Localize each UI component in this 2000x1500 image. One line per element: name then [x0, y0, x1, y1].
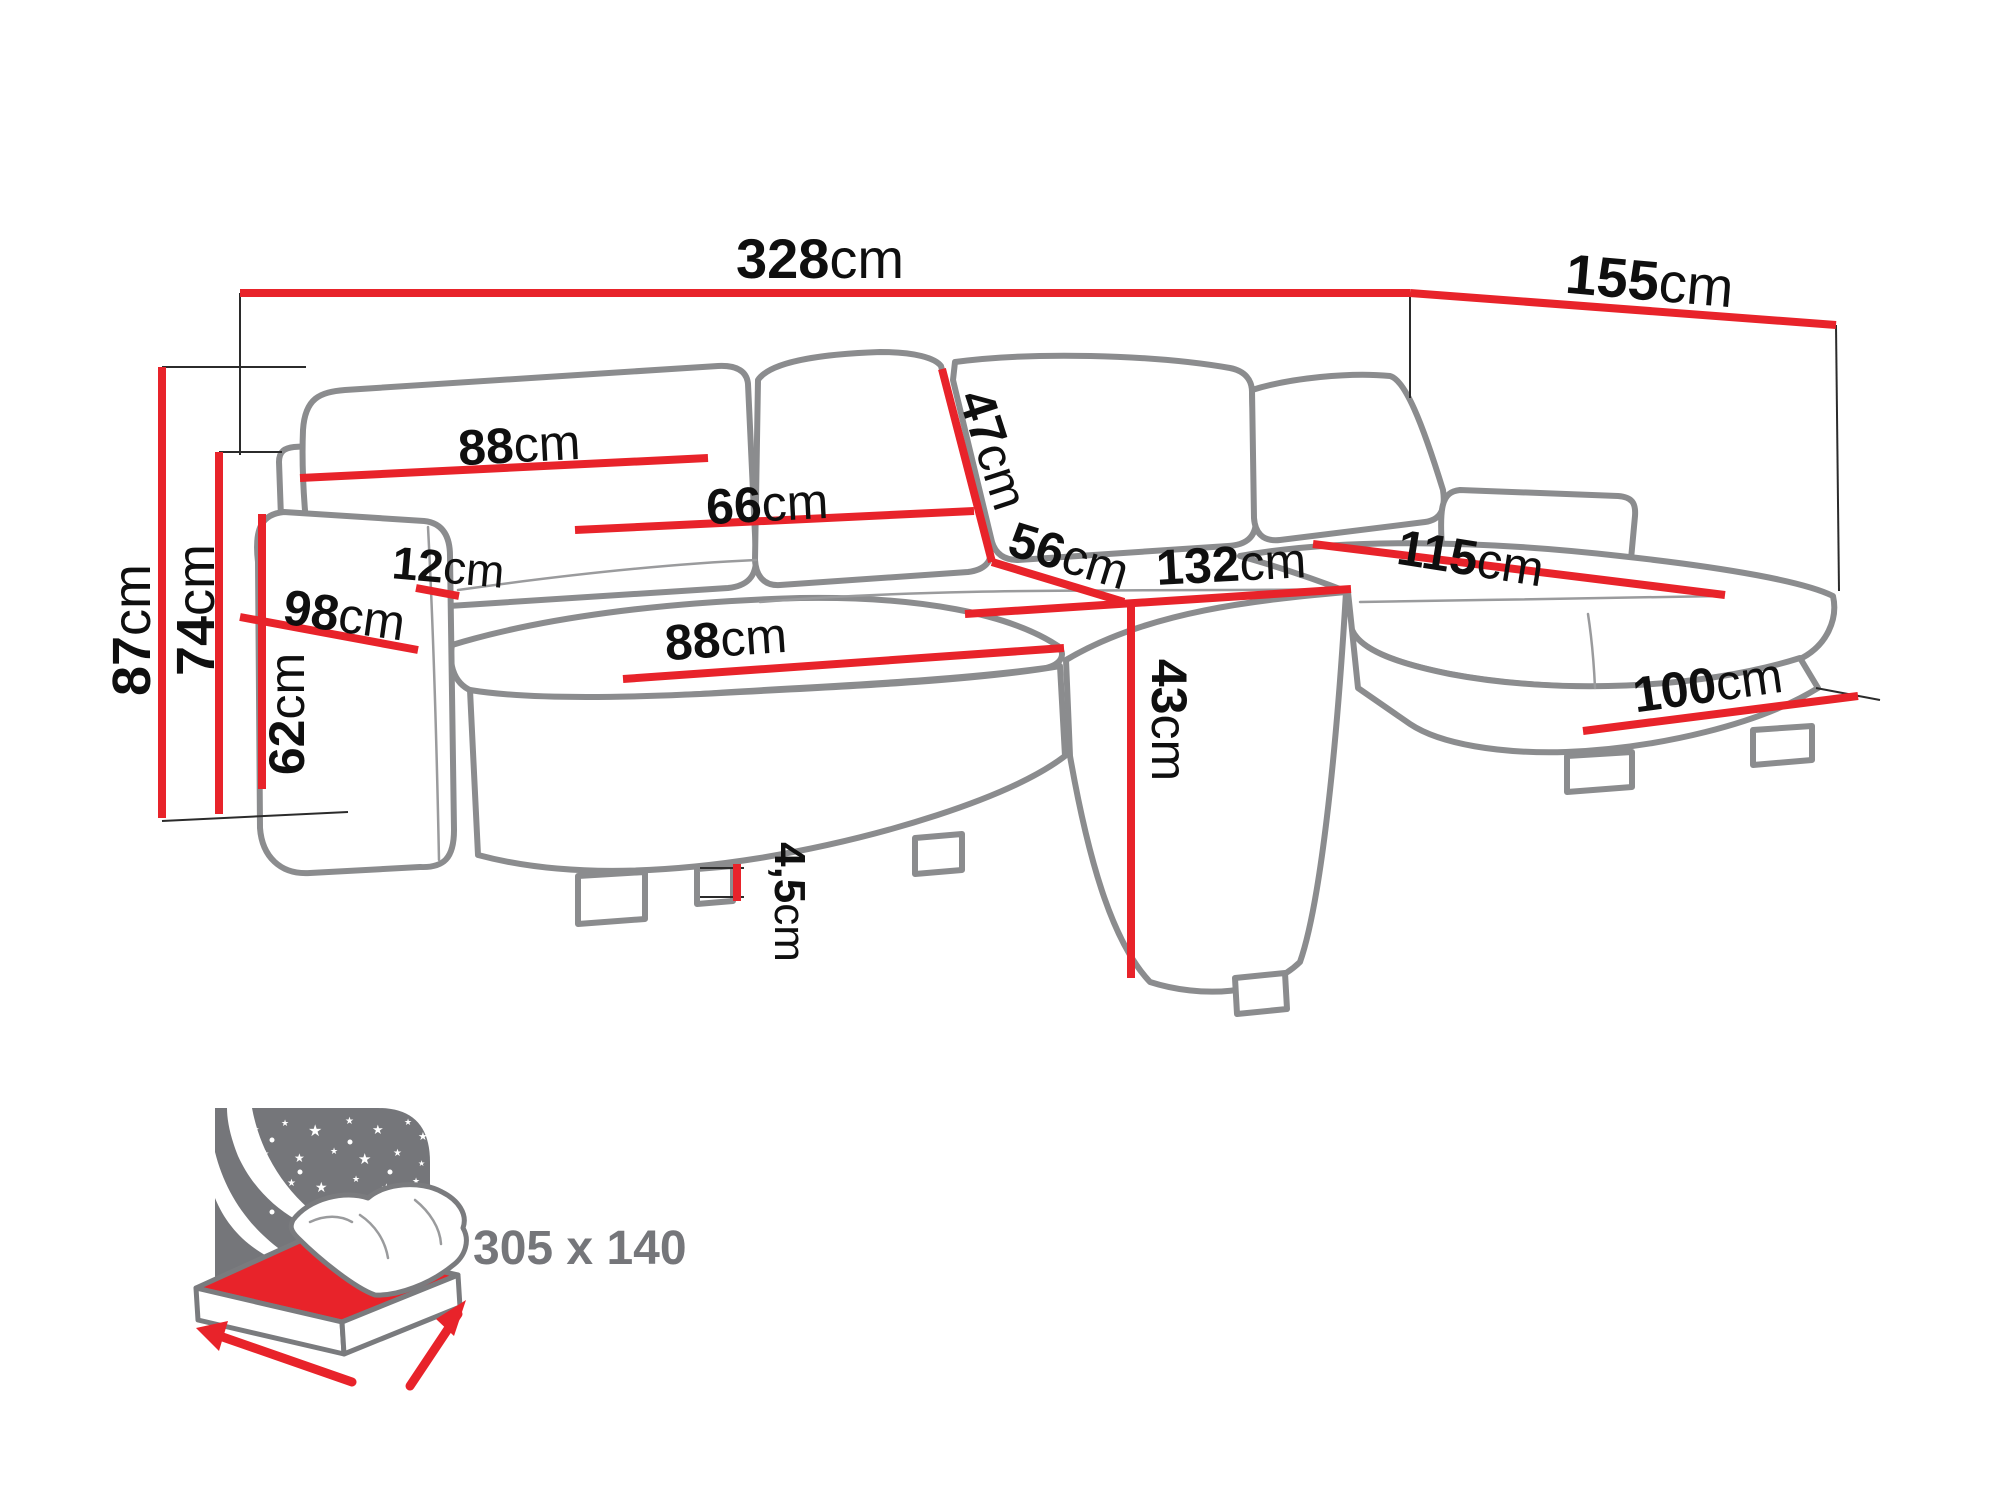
ext-right-drop [1836, 325, 1839, 591]
back-pillow-4 [1252, 375, 1444, 540]
middle-leg [1235, 973, 1287, 1014]
arrow-width-head [196, 1321, 228, 1351]
svg-text:★: ★ [287, 1178, 296, 1189]
left-chaise-leg-2 [697, 866, 733, 904]
sleeping-area-label: 305 x 140 [473, 1222, 687, 1275]
label-backrest-height: 74cm [166, 544, 226, 676]
label-total-width: 328cm [736, 227, 904, 290]
label-middle-section-width: 132cm [1155, 532, 1308, 596]
svg-text:★: ★ [418, 1159, 425, 1168]
label-back-cushion-width: 88cm [457, 414, 582, 476]
svg-text:★: ★ [352, 1175, 360, 1185]
label-armrest-width: 12cm [390, 536, 507, 598]
svg-text:★: ★ [330, 1147, 338, 1157]
svg-text:★: ★ [294, 1151, 305, 1165]
label-armrest-height: 62cm [259, 653, 315, 775]
label-middle-back-cushion-width: 66cm [705, 473, 830, 535]
middle-base [1066, 592, 1346, 992]
svg-text:★: ★ [372, 1123, 384, 1138]
svg-text:★: ★ [308, 1121, 322, 1140]
svg-text:★: ★ [345, 1116, 354, 1127]
svg-text:★: ★ [281, 1119, 289, 1129]
label-leg-height: 4,5cm [765, 842, 814, 962]
svg-text:★: ★ [358, 1150, 371, 1168]
left-chaise-leg-3 [915, 834, 962, 874]
right-chaise-leg-right [1753, 726, 1812, 765]
left-chaise-base [470, 666, 1065, 871]
svg-text:★: ★ [315, 1180, 328, 1196]
right-chaise-leg-front [1567, 752, 1632, 792]
svg-text:★: ★ [404, 1118, 412, 1128]
label-total-height: 87cm [102, 564, 162, 696]
svg-text:★: ★ [418, 1130, 428, 1143]
left-chaise-leg-1 [578, 872, 645, 924]
sofa-dimension-diagram: 328cm 155cm 87cm 74cm 62cm 98cm 12cm 88c… [0, 0, 2000, 1500]
svg-text:★: ★ [393, 1148, 402, 1159]
label-seat-height: 43cm [1141, 659, 1197, 781]
svg-text:★: ★ [248, 1123, 260, 1138]
sleeping-function-icon: ★★ ★★ ★★ ★★ ★★ ★★ ★★ ★★ ★★ ★★ ★★ ★★ ★★ ★… [196, 1108, 687, 1386]
label-seat-width: 88cm [663, 607, 789, 671]
svg-text:★: ★ [262, 1149, 269, 1158]
diagram-canvas: 328cm 155cm 87cm 74cm 62cm 98cm 12cm 88c… [0, 0, 2000, 1500]
